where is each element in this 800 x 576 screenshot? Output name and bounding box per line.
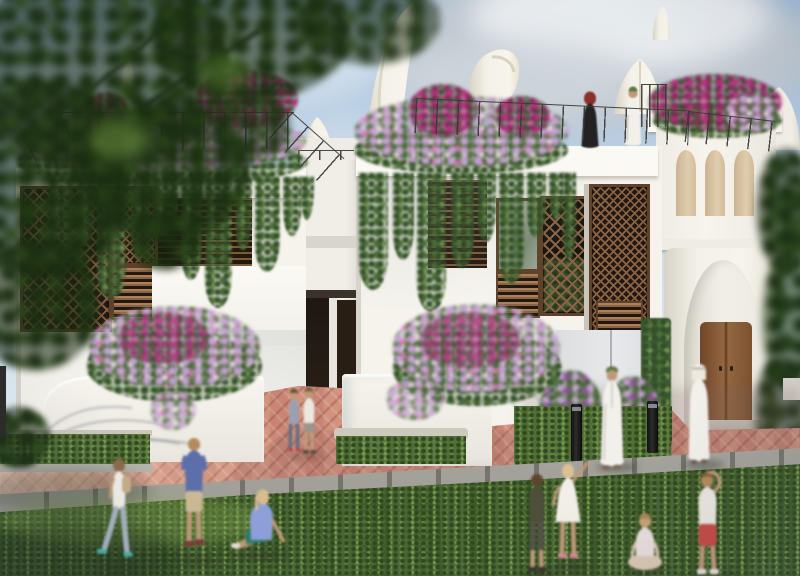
person-boy-red-shorts (686, 468, 734, 576)
person-child-sitting (620, 510, 670, 572)
people-layer (0, 0, 800, 576)
person-girl-walking (92, 456, 144, 568)
person-girl-sitting (226, 486, 292, 562)
person-boy-blue (174, 436, 214, 564)
person-man-green-cap (592, 364, 632, 472)
architectural-render-scene (0, 0, 800, 576)
person-kids-by-door (284, 384, 322, 460)
person-man-ghutra (680, 362, 718, 466)
person-girl-pointing (546, 460, 594, 570)
